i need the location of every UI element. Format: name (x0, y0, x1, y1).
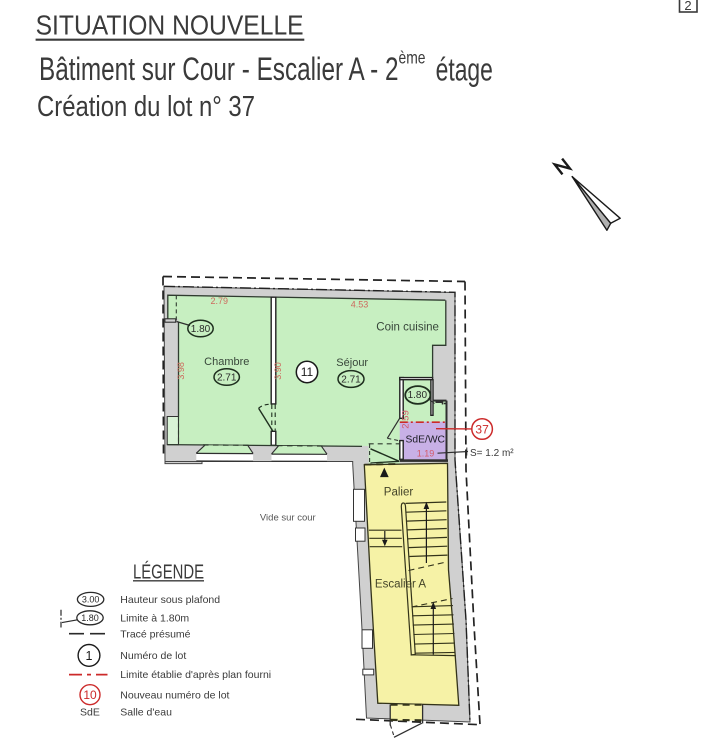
svg-text:3.90: 3.90 (273, 362, 283, 380)
svg-text:SdE: SdE (80, 707, 100, 719)
svg-text:3.00: 3.00 (82, 595, 100, 605)
svg-text:Séjour: Séjour (336, 357, 368, 369)
svg-text:Hauteur sous plafond: Hauteur sous plafond (120, 594, 220, 606)
svg-text:Chambre: Chambre (204, 356, 249, 368)
svg-text:2.71: 2.71 (341, 375, 361, 386)
svg-text:1.19: 1.19 (417, 448, 435, 458)
svg-text:2: 2 (684, 0, 691, 13)
svg-text:Création du lot n° 37: Création du lot n° 37 (37, 91, 255, 123)
svg-text:S= 1.2 m²: S= 1.2 m² (470, 448, 514, 459)
svg-text:1: 1 (86, 649, 93, 663)
svg-text:4.53: 4.53 (351, 299, 369, 309)
svg-text:Limite à 1.80m: Limite à 1.80m (120, 612, 189, 624)
svg-text:Limite établie d'après plan fo: Limite établie d'après plan fourni (120, 669, 271, 681)
svg-text:1.80: 1.80 (81, 613, 99, 623)
svg-text:37: 37 (475, 422, 489, 436)
svg-text:1.80: 1.80 (191, 324, 211, 335)
svg-text:LÉGENDE: LÉGENDE (133, 561, 204, 584)
svg-text:Coin cuisine: Coin cuisine (376, 322, 439, 334)
svg-text:2.71: 2.71 (217, 373, 237, 384)
svg-text:SdE/WC: SdE/WC (406, 434, 446, 445)
svg-text:10: 10 (83, 688, 97, 702)
svg-text:2.59: 2.59 (400, 410, 411, 429)
svg-text:1.80: 1.80 (408, 390, 428, 401)
svg-text:Palier: Palier (384, 487, 414, 499)
svg-text:Escalier A: Escalier A (375, 579, 426, 591)
svg-text:Numéro de lot: Numéro de lot (120, 650, 186, 662)
svg-text:Vide sur cour: Vide sur cour (260, 513, 316, 524)
svg-text:Nouveau numéro de lot: Nouveau numéro de lot (120, 689, 229, 701)
svg-text:3.98: 3.98 (176, 362, 186, 380)
svg-text:Salle d'eau: Salle d'eau (120, 707, 172, 719)
svg-text:Bâtiment sur Cour - Escalier A: Bâtiment sur Cour - Escalier A - 2 (39, 51, 399, 87)
svg-text:11: 11 (301, 365, 314, 379)
svg-text:Tracé présumé: Tracé présumé (120, 628, 190, 640)
svg-text:étage: étage (436, 51, 493, 87)
svg-text:ème: ème (399, 48, 426, 68)
svg-text:2.79: 2.79 (211, 296, 229, 306)
svg-text:SITUATION NOUVELLE: SITUATION NOUVELLE (36, 10, 304, 41)
